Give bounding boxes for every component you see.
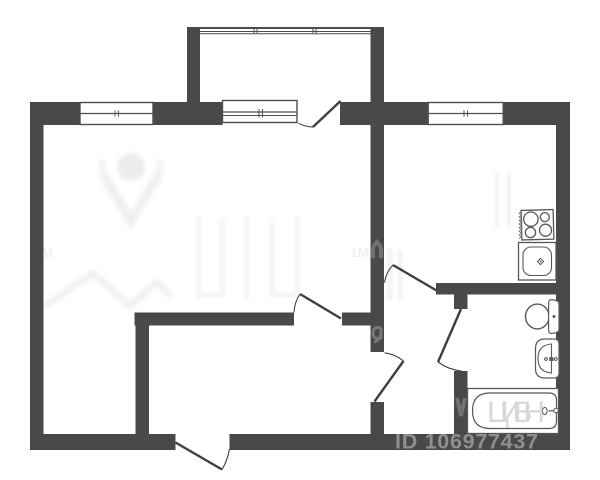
svg-text:ID 106977437: ID 106977437 (395, 430, 538, 454)
svg-text:ЦИВН: ЦИВН (487, 396, 545, 429)
svg-text:1М: 1М (350, 244, 369, 260)
